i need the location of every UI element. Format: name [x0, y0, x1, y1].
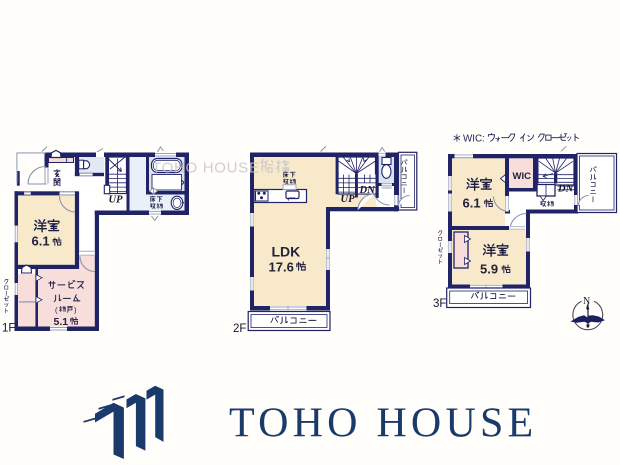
svg-text:5.9: 5.9 [480, 262, 498, 277]
svg-text:WIC: WIC [513, 171, 532, 182]
svg-text:6.1: 6.1 [32, 234, 50, 249]
svg-text:DN: DN [359, 185, 376, 196]
svg-text:5.1: 5.1 [54, 316, 69, 328]
svg-text:TOHO HOUSE: TOHO HOUSE [229, 401, 537, 447]
svg-text:3F: 3F [433, 298, 446, 310]
svg-text:UP: UP [341, 194, 356, 205]
svg-text:1F: 1F [2, 323, 15, 335]
svg-text:6.1: 6.1 [463, 196, 481, 211]
svg-text:WIC:: WIC: [463, 134, 485, 145]
svg-text:2F: 2F [233, 323, 246, 335]
svg-text:UP: UP [109, 194, 124, 205]
svg-text:17.6: 17.6 [269, 260, 294, 275]
svg-text:LDK: LDK [272, 244, 301, 260]
svg-text:N: N [583, 296, 590, 307]
svg-text:DN: DN [557, 183, 574, 194]
svg-text:TOHO HOUSE: TOHO HOUSE [152, 160, 260, 177]
